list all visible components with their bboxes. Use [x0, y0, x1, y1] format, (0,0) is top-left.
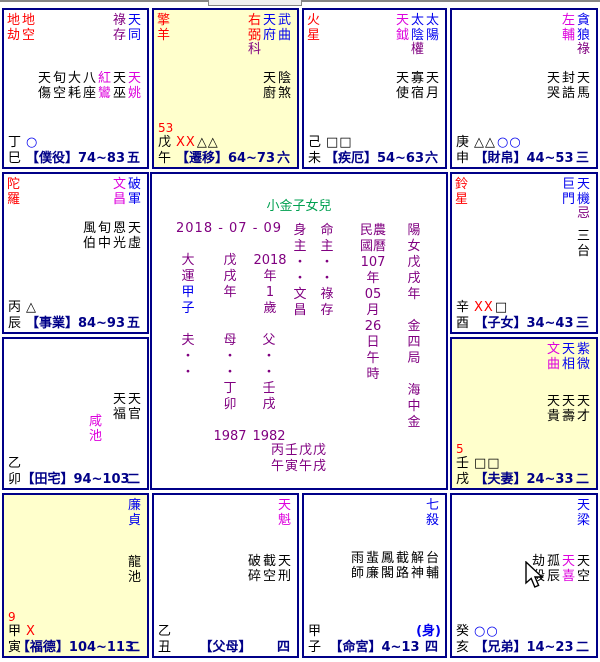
minor-star: 天月	[425, 72, 440, 101]
main-star-group: 左輔貪狼祿	[561, 14, 591, 58]
minor-star-group: 天貴天壽天才	[546, 395, 591, 424]
main-star-group: 天梁	[576, 499, 591, 528]
age-number: 53	[158, 122, 173, 135]
palace-label: 【田宅】94~103	[4, 473, 147, 487]
palace-cell-you[interactable]: 鈴星巨門天機忌三台辛XX□酉【子女】34~43三	[450, 172, 598, 334]
stem-character: 甲	[8, 625, 21, 639]
main-star: 文曲	[546, 343, 561, 372]
four-pillars: 丙壬戊戊 午寅午戌	[152, 443, 446, 475]
minor-star: 大耗	[67, 72, 82, 101]
minor-star-group: 天哭封誥天馬	[546, 72, 591, 101]
minor-star-group: 天使寡宿天月	[395, 72, 440, 101]
main-star: 天府	[262, 14, 277, 58]
palace-cell-chou[interactable]: 天魁破碎截空天刑乙丑【父母】四	[152, 493, 299, 658]
brightness-symbols: △△○○	[474, 136, 523, 150]
minor-star: 天才	[576, 395, 591, 424]
minor-star: 天福	[112, 393, 127, 422]
brightness-symbols: △	[26, 301, 38, 315]
center-info-panel: 小金子女兒 2018 - 07 - 09 丙壬戊戊 午寅午戌 大運甲子戊戌年20…	[150, 172, 448, 490]
corner-number: 四	[425, 641, 438, 655]
minor-star: 鳳閣	[380, 552, 395, 581]
stem-character: 甲	[308, 625, 321, 639]
main-star-group: 廉貞	[127, 499, 142, 528]
main-star: 天魁	[277, 499, 292, 528]
palace-cell-si[interactable]: 地劫地空祿存天同天傷旬空大耗八座紅鸞天巫天姚丁○巳【僕役】74~83五	[2, 8, 149, 169]
malefic-star-group: 火星	[306, 14, 321, 43]
main-star-group: 文曲天相紫微	[546, 343, 591, 372]
main-star: 破軍	[127, 178, 142, 207]
minor-star-group: 天傷旬空大耗八座紅鸞天巫天姚	[37, 72, 142, 101]
minor-star-group: 雨師蜚廉鳳閣截路解神台輔	[350, 552, 440, 581]
malefic-star: 火星	[306, 14, 321, 43]
minor-star: 天刑	[277, 555, 292, 584]
brightness-symbols: XX△△	[176, 136, 220, 150]
malefic-star: 擎羊	[156, 14, 171, 43]
main-star: 天相	[561, 343, 576, 372]
malefic-star-group: 地劫地空	[6, 14, 36, 43]
palace-cell-shen[interactable]: 左輔貪狼祿天哭封誥天馬庚△△○○申【財帛】44~53三	[450, 8, 598, 169]
minor-star: 旬空	[52, 72, 67, 101]
main-star: 巨門	[561, 178, 576, 222]
minor-star: 咸池	[88, 415, 103, 444]
minor-star: 旬中	[97, 222, 112, 251]
corner-number: 三	[576, 317, 589, 331]
minor-star: 蜚廉	[365, 552, 380, 581]
minor-star: 天哭	[546, 72, 561, 101]
main-star: 太陰權	[410, 14, 425, 58]
minor-star: 紅鸞	[97, 72, 112, 101]
minor-star: 解神	[410, 552, 425, 581]
minor-star-group: 風伯旬中恩光天虛	[82, 222, 142, 251]
main-star: 天同	[127, 14, 142, 43]
main-star-group: 天鉞太陰權太陽	[395, 14, 440, 58]
corner-number: 二	[127, 473, 140, 487]
malefic-star-group: 擎羊	[156, 14, 171, 43]
malefic-star-group: 鈴星	[454, 178, 469, 207]
minor-star: 天馬	[576, 72, 591, 101]
main-star: 貪狼祿	[576, 14, 591, 58]
main-star: 天梁	[576, 499, 591, 528]
minor-star: 台輔	[425, 552, 440, 581]
corner-number: 六	[277, 152, 290, 166]
minor-star: 八座	[82, 72, 97, 101]
minor-star: 天貴	[546, 395, 561, 424]
minor-star-group: 天廚陰煞	[262, 72, 292, 101]
hua-marker: 忌	[576, 207, 591, 222]
corner-number: 二	[127, 641, 140, 655]
pillar-stems: 丙壬戊戊	[152, 443, 446, 459]
palace-label: 【事業】84~93	[4, 317, 147, 331]
minor-star: 天虛	[127, 222, 142, 251]
brightness-symbols: □□	[474, 457, 502, 471]
malefic-star: 鈴星	[454, 178, 469, 207]
minor-star: 三台	[576, 230, 591, 259]
main-star: 右弼科	[247, 14, 262, 58]
stem-character: 庚	[456, 136, 469, 150]
minor-star: 陰煞	[277, 72, 292, 101]
minor-star: 天喜	[561, 555, 576, 584]
age-number: 9	[8, 611, 16, 624]
main-star: 祿存	[112, 14, 127, 43]
corner-number: 五	[127, 317, 140, 331]
palace-label: 【僕役】74~83	[4, 152, 147, 166]
minor-star-group: 破碎截空天刑	[247, 555, 292, 584]
corner-number: 六	[425, 152, 438, 166]
center-column-mother-line: 母・・丁卯1987	[213, 333, 247, 445]
main-star: 紫微	[576, 343, 591, 372]
palace-label: 【遷移】64~73	[154, 152, 297, 166]
palace-label: 【福德】104~113	[4, 641, 147, 655]
brightness-symbols: ○○	[474, 625, 500, 639]
palace-cell-hai[interactable]: 天梁劫殺孤辰天喜天空癸○○亥【兄弟】14~23二	[450, 493, 598, 658]
malefic-star: 陀羅	[6, 178, 21, 207]
palace-cell-mao[interactable]: 天福天官咸池乙卯【田宅】94~103二	[2, 337, 149, 490]
palace-label: 【財帛】44~53	[452, 152, 596, 166]
palace-label: 【子女】34~43	[452, 317, 596, 331]
stem-character: 癸	[456, 625, 469, 639]
stem-character: 戊	[158, 136, 171, 150]
pillar-branches: 午寅午戌	[152, 459, 446, 475]
stem-character: 丁	[8, 136, 21, 150]
palace-cell-wei[interactable]: 火星天鉞太陰權太陽天使寡宿天月己□□未【疾厄】54~63六	[302, 8, 447, 169]
main-star: 廉貞	[127, 499, 142, 528]
corner-number: 二	[576, 473, 589, 487]
stem-character: 丙	[8, 301, 21, 315]
stem-character: 辛	[456, 301, 469, 315]
stem-character: 乙	[158, 625, 171, 639]
palace-label: 【夫妻】24~33	[452, 473, 596, 487]
main-star: 天機忌	[576, 178, 591, 222]
minor-star: 風伯	[82, 222, 97, 251]
corner-number: 三	[576, 152, 589, 166]
center-column-dayun: 大運甲子	[180, 253, 196, 317]
hua-marker: 祿	[576, 43, 591, 58]
minor-star: 破碎	[247, 555, 262, 584]
center-column-parent-line: 父・・壬戌1982	[252, 333, 286, 445]
minor-star: 天空	[576, 555, 591, 584]
center-column-shenzhu: 身主・・文昌	[292, 223, 308, 319]
minor-star: 天壽	[561, 395, 576, 424]
malefic-star-group: 陀羅	[6, 178, 21, 207]
minor-star: 截空	[262, 555, 277, 584]
minor-star: 天廚	[262, 72, 277, 101]
corner-number: 五	[127, 152, 140, 166]
main-star: 武曲	[277, 14, 292, 58]
ziwei-chart: 小金子女兒 2018 - 07 - 09 丙壬戊戊 午寅午戌 大運甲子戊戌年20…	[0, 0, 600, 662]
main-star: 文昌	[112, 178, 127, 207]
minor-star: 天傷	[37, 72, 52, 101]
center-column-mingzhu: 命主・・祿存	[319, 223, 335, 319]
malefic-star: 地劫	[6, 14, 21, 43]
palace-label: 【父母】	[154, 641, 297, 655]
main-star-group: 文昌破軍	[112, 178, 142, 207]
palace-cell-yin[interactable]: 廉貞龍池9甲X寅【福德】104~113二	[2, 493, 149, 658]
main-star: 太陽	[425, 14, 440, 58]
stem-character: 壬	[456, 457, 469, 471]
minor-star-group: 龍池	[127, 556, 142, 585]
minor-star: 天姚	[127, 72, 142, 101]
palace-label: 【疾厄】54~63	[304, 152, 445, 166]
minor-star: 孤辰	[546, 555, 561, 584]
age-number: 5	[456, 443, 464, 456]
brightness-symbols: X	[26, 625, 37, 639]
minor-star-group: 咸池	[88, 415, 103, 444]
minor-star-group: 天福天官	[112, 393, 142, 422]
corner-number: 二	[576, 641, 589, 655]
minor-star: 天使	[395, 72, 410, 101]
hua-marker: 科	[247, 43, 262, 58]
minor-star: 天官	[127, 393, 142, 422]
corner-number: 四	[277, 641, 290, 655]
minor-star: 天巫	[112, 72, 127, 101]
hua-marker: 權	[410, 43, 425, 58]
main-star: 天鉞	[395, 14, 410, 58]
center-column-year-age: 2018年1歲	[253, 253, 287, 317]
palace-label: 【命宮】4~13	[304, 641, 445, 655]
main-star-group: 天魁	[277, 499, 292, 528]
minor-star: 恩光	[112, 222, 127, 251]
palace-label: 【兄弟】14~23	[452, 641, 596, 655]
main-star-group: 七殺	[425, 499, 440, 528]
main-star-group: 右弼科天府武曲	[247, 14, 292, 58]
center-column-gender: 陽女戊戌年金四局海中金	[406, 223, 422, 431]
palace-cell-chen[interactable]: 陀羅文昌破軍風伯旬中恩光天虛丙△辰【事業】84~93五	[2, 172, 149, 334]
minor-star-group: 三台	[576, 230, 591, 259]
mouse-cursor	[525, 561, 547, 591]
center-column-calendar: 民農國曆107年05月26日午時	[359, 223, 387, 383]
stem-character: 己	[308, 136, 321, 150]
palace-cell-wu[interactable]: 擎羊右弼科天府武曲天廚陰煞53戊XX△△午【遷移】64~73六	[152, 8, 299, 169]
palace-cell-xu[interactable]: 文曲天相紫微天貴天壽天才5壬□□戌【夫妻】24~33二	[450, 337, 598, 490]
malefic-star: 地空	[21, 14, 36, 43]
body-palace-marker: (身)	[416, 625, 441, 639]
minor-star: 截路	[395, 552, 410, 581]
brightness-symbols: XX□	[474, 301, 509, 315]
brightness-symbols: □□	[326, 136, 354, 150]
palace-cell-zi[interactable]: 七殺雨師蜚廉鳳閣截路解神台輔甲(身)子【命宮】4~13四	[302, 493, 447, 658]
center-column-year-stem: 戊戌年	[222, 253, 238, 301]
main-star: 左輔	[561, 14, 576, 58]
minor-star: 龍池	[127, 556, 142, 585]
main-star: 七殺	[425, 499, 440, 528]
chart-title: 小金子女兒	[152, 195, 446, 214]
solar-birth-date: 2018 - 07 - 09	[176, 221, 282, 237]
minor-star: 封誥	[561, 72, 576, 101]
brightness-symbols: ○	[26, 136, 39, 150]
minor-star: 寡宿	[410, 72, 425, 101]
minor-star: 雨師	[350, 552, 365, 581]
stem-character: 乙	[8, 457, 21, 471]
center-column-father-line: 夫・・	[180, 333, 196, 381]
main-star-group: 巨門天機忌	[561, 178, 591, 222]
main-star-group: 祿存天同	[112, 14, 142, 43]
